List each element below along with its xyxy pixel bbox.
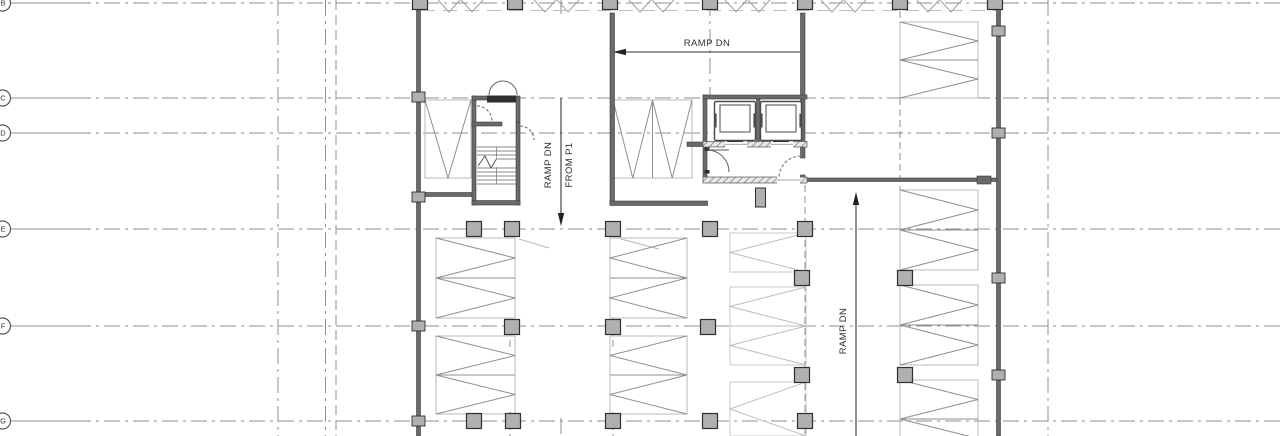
ramp-dn-center-arrow-head [558, 213, 564, 226]
parking-stall-zigzag [610, 238, 687, 318]
door-panel [705, 170, 710, 174]
wall [703, 95, 707, 182]
parking-stall-zigzag [900, 190, 978, 270]
parking-bay [425, 100, 471, 178]
stair-vestibule-door-arc [477, 106, 492, 121]
wall [472, 122, 502, 126]
ramp-dn-right-arrow-head [853, 192, 859, 205]
aisle-chamfer-line [519, 239, 549, 248]
column [798, 222, 813, 237]
wall-tick [412, 321, 425, 331]
parking-stall-zigzag [436, 238, 515, 318]
wall-tick [412, 92, 425, 102]
grid-bubble-letter-G: G [0, 417, 6, 426]
wall [516, 122, 520, 205]
lobby-left-door-arc [707, 150, 729, 172]
stair-top-door-arc [489, 81, 517, 95]
grid-bubble-letter-E: E [0, 225, 5, 234]
label-ramp-dn-right: RAMP DN [838, 308, 849, 354]
door-panel [487, 96, 516, 103]
wall [516, 96, 520, 122]
column [606, 222, 621, 237]
wall-tick [992, 273, 1005, 283]
column [467, 222, 482, 237]
wall [417, 0, 421, 436]
wall-tick [992, 26, 1005, 36]
column [703, 0, 718, 10]
parking-stall-zigzag [610, 336, 687, 414]
wall-tick [992, 128, 1005, 138]
wall [610, 201, 708, 206]
parking-stall-zigzag [730, 382, 806, 436]
parking-bay [900, 380, 978, 436]
parking-stall-zigzag [730, 233, 806, 272]
label-ramp-dn-from-p1-line2: FROM P1 [564, 142, 575, 187]
column [506, 414, 521, 429]
parking-stall-zigzag [900, 22, 978, 98]
parking-stall-zigzag [900, 285, 978, 365]
wall-tick [412, 416, 425, 426]
parking-stall-zigzag [425, 100, 471, 178]
floor-plan: BCDEFGRAMP DNRAMP DNFROM P1RAMP DN [0, 0, 1280, 436]
label-ramp-dn-top: RAMP DN [684, 38, 730, 49]
column [505, 222, 520, 237]
floor-plan-canvas: BCDEFGRAMP DNRAMP DNFROM P1RAMP DN [0, 0, 1280, 436]
wall [472, 201, 520, 206]
parking-stall-zigzag [730, 287, 806, 365]
column [798, 0, 813, 10]
column-small [756, 188, 766, 207]
column [467, 414, 482, 429]
column [898, 368, 913, 383]
parking-bay [730, 233, 806, 272]
parking-stall-zigzag [900, 380, 978, 436]
elevator-cab [761, 102, 802, 141]
column [603, 0, 618, 10]
label-ramp-dn-from-p1-line1: RAMP DN [543, 142, 554, 188]
parking-stall-zigzag [436, 336, 515, 414]
column [606, 414, 621, 429]
grid-bubble-letter-F: F [1, 322, 6, 331]
column [893, 0, 908, 10]
column [508, 0, 523, 10]
column [703, 222, 718, 237]
wall [610, 13, 615, 205]
ramp-dn-top-arrow-head [613, 49, 626, 55]
column [606, 320, 621, 335]
column [988, 0, 1003, 10]
grid-bubble-letter-C: C [0, 94, 6, 103]
wall-tick [412, 192, 425, 202]
wall [977, 176, 991, 184]
wall-tick [992, 370, 1005, 380]
column [703, 414, 718, 429]
parking-bay [730, 382, 806, 436]
aisle-chamfer-line [621, 239, 659, 249]
wall [703, 95, 807, 99]
wall [805, 178, 997, 182]
parking-stall-zigzag [613, 100, 692, 178]
column [898, 271, 913, 286]
wall [472, 96, 476, 205]
column [701, 320, 716, 335]
column [795, 271, 810, 286]
grid-bubble-letter-B: B [0, 0, 5, 8]
lobby-right-door-arc [779, 156, 801, 178]
column [795, 368, 810, 383]
column [798, 414, 813, 429]
grid-bubble-letter-D: D [0, 129, 6, 138]
wall [757, 99, 761, 143]
column [505, 320, 520, 335]
column [413, 0, 428, 10]
wall [472, 96, 488, 100]
elevator-cab [715, 102, 756, 141]
